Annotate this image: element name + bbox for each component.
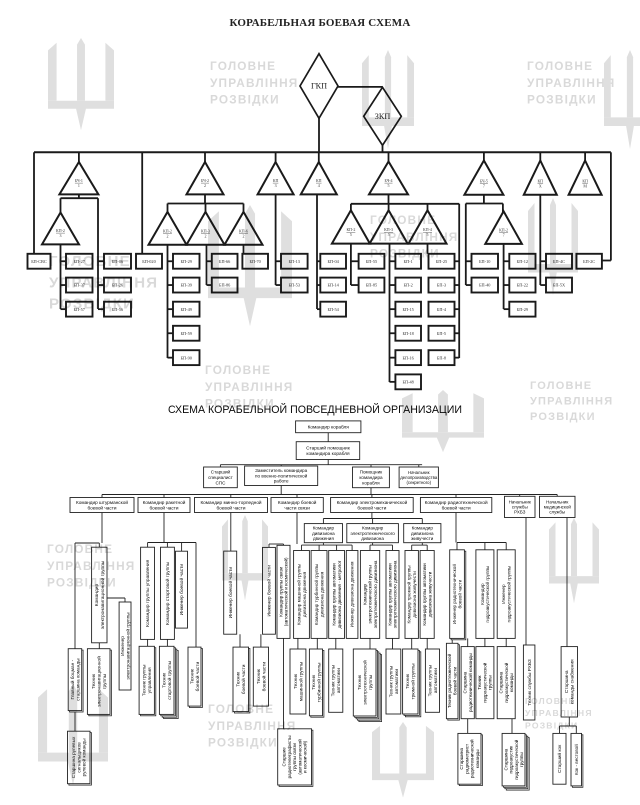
svg-text:Командир турбинной группы: Командир турбинной группы xyxy=(313,563,319,625)
svg-text:2: 2 xyxy=(167,233,169,238)
svg-text:БП-66: БП-66 xyxy=(219,259,231,264)
svg-text:Старшина: Старшина xyxy=(564,670,570,693)
svg-text:управления: управления xyxy=(148,667,153,693)
svg-text:СПС: СПС xyxy=(215,480,226,485)
svg-text:2: 2 xyxy=(205,233,207,238)
svg-text:БП-49: БП-49 xyxy=(181,307,192,312)
svg-text:Командир группы автоматики: Командир группы автоматики xyxy=(387,563,392,626)
svg-text:гидроакустической группы: гидроакустической группы xyxy=(484,565,490,623)
svg-text:БП-18: БП-18 xyxy=(403,331,414,336)
svg-text:Старшина: Старшина xyxy=(499,671,504,693)
svg-text:БП-59: БП-59 xyxy=(181,331,192,336)
svg-text:Командир: Командир xyxy=(313,525,335,530)
svg-text:трюмной группы: трюмной группы xyxy=(410,663,417,700)
svg-text:БП-СВС: БП-СВС xyxy=(31,259,47,264)
svg-text:БП-48: БП-48 xyxy=(403,379,414,384)
svg-text:Инженер боевой части: Инженер боевой части xyxy=(178,564,185,616)
svg-text:работе: работе xyxy=(274,479,289,484)
svg-text:группы: группы xyxy=(488,675,493,690)
svg-text:Помощник: Помощник xyxy=(360,470,383,475)
svg-text:дивизиона движения: дивизиона движения xyxy=(319,571,324,617)
svg-text:БП-15: БП-15 xyxy=(403,307,414,312)
svg-text:радиотелеграфисты: радиотелеграфисты xyxy=(287,735,292,778)
svg-text:Командир: Командир xyxy=(362,525,384,530)
svg-text:(секретного): (секретного) xyxy=(406,480,431,485)
svg-text:команды: команды xyxy=(475,749,480,768)
svg-text:группы: группы xyxy=(103,673,108,689)
svg-text:РОЗВІДКИ: РОЗВІДКИ xyxy=(205,397,275,411)
svg-text:живучести: живучести xyxy=(411,536,434,541)
svg-text:Командир машинной группы: Командир машинной группы xyxy=(295,563,301,625)
svg-text:ГОЛОВНЕ: ГОЛОВНЕ xyxy=(208,702,274,716)
svg-text:БП-12: БП-12 xyxy=(517,259,528,264)
svg-text:ГОЛОВНЕ: ГОЛОВНЕ xyxy=(527,59,593,73)
svg-text:ГОЛОВНЕ: ГОЛОВНЕ xyxy=(210,59,276,73)
svg-text:БП-2С: БП-2С xyxy=(583,259,595,264)
svg-text:Техник группы: Техник группы xyxy=(331,664,337,696)
svg-text:Старший помощник: Старший помощник xyxy=(306,445,351,452)
svg-text:Инженер: Инженер xyxy=(501,584,506,604)
svg-text:Командир штурманской: Командир штурманской xyxy=(76,499,128,505)
svg-text:РОЗВІДКИ: РОЗВІДКИ xyxy=(530,411,596,423)
svg-text:Старшина: Старшина xyxy=(463,671,468,693)
svg-text:(автоматической: (автоматической xyxy=(296,739,302,775)
svg-text:боевой части: боевой части xyxy=(357,504,386,510)
svg-text:ГОЛОВНЕ: ГОЛОВНЕ xyxy=(370,213,436,227)
svg-text:дивизиона движения - метролог: дивизиона движения - метролог xyxy=(337,560,342,628)
svg-text:5: 5 xyxy=(388,183,390,188)
svg-text:РОЗВІДКИ: РОЗВІДКИ xyxy=(210,93,280,107)
svg-text:ГОЛОВНЕ: ГОЛОВНЕ xyxy=(205,363,271,377)
svg-text:боевой части: боевой части xyxy=(87,504,116,510)
svg-text:УПРАВЛІННЯ: УПРАВЛІННЯ xyxy=(527,76,615,90)
svg-text:электротехнической группы: электротехнической группы xyxy=(367,565,373,623)
svg-text:БП-4: БП-4 xyxy=(437,307,447,312)
svg-text:боевой части: боевой части xyxy=(451,666,457,695)
svg-text:Старшина: Старшина xyxy=(459,748,464,770)
svg-text:Техник радиотехнической: Техник радиотехнической xyxy=(446,653,452,708)
svg-text:БП-2: БП-2 xyxy=(404,283,413,288)
svg-text:БП-16: БП-16 xyxy=(403,355,415,360)
svg-text:БП-14: БП-14 xyxy=(327,283,339,288)
svg-text:команды: команды xyxy=(509,673,514,692)
svg-text:дивизиона: дивизиона xyxy=(411,531,434,536)
svg-text:Техник группы: Техник группы xyxy=(427,664,433,696)
svg-text:дивизиона: дивизиона xyxy=(312,531,335,536)
svg-text:гидроакустической группы: гидроакустической группы xyxy=(506,565,512,623)
svg-text:Командир: Командир xyxy=(412,525,434,530)
svg-text:ГОЛОВНЕ: ГОЛОВНЕ xyxy=(47,542,113,556)
svg-text:УПРАВЛІННЯ: УПРАВЛІННЯ xyxy=(47,559,135,573)
svg-text:Командир боевой: Командир боевой xyxy=(278,499,317,505)
svg-text:дивизиона живучести: дивизиона живучести xyxy=(412,571,417,618)
svg-text:БП-020: БП-020 xyxy=(142,259,155,264)
svg-text:УПРАВЛІННЯ: УПРАВЛІННЯ xyxy=(208,719,296,733)
svg-text:БП-54: БП-54 xyxy=(327,307,339,312)
svg-text:Командир трюмной группы: Командир трюмной группы xyxy=(406,565,412,624)
svg-text:дивизиона: дивизиона xyxy=(361,536,384,541)
svg-text:Командир группы автоматики: Командир группы автоматики xyxy=(332,563,337,626)
svg-text:БП-04: БП-04 xyxy=(327,259,339,264)
svg-text:ГОЛОВНЕ: ГОЛОВНЕ xyxy=(530,380,592,392)
svg-text:боевой части: боевой части xyxy=(149,504,178,510)
svg-text:2: 2 xyxy=(243,233,245,238)
svg-text:группы: группы xyxy=(519,752,524,767)
svg-text:Командир ракетной: Командир ракетной xyxy=(143,499,186,505)
svg-text:боевой части: боевой части xyxy=(442,504,471,510)
svg-text:и космической): и космической) xyxy=(302,740,308,773)
svg-text:7: 7 xyxy=(483,183,485,188)
svg-text:3: 3 xyxy=(275,183,277,188)
svg-text:Командир электромеханической: Командир электромеханической xyxy=(337,499,408,505)
svg-text:Командир минно-торпедной: Командир минно-торпедной xyxy=(200,499,261,505)
svg-text:гидроакустической: гидроакустической xyxy=(513,739,519,779)
svg-text:Старший: Старший xyxy=(211,469,231,475)
svg-text:боевой части: боевой части xyxy=(240,664,247,694)
svg-text:БП-8: БП-8 xyxy=(437,355,446,360)
svg-text:Техник группы: Техник группы xyxy=(388,665,394,697)
svg-text:Техник группы: Техник группы xyxy=(142,664,148,696)
svg-text:4: 4 xyxy=(318,183,320,188)
svg-text:Инженер радиотехнической: Инженер радиотехнической xyxy=(451,564,457,625)
svg-text:машинной группы: машинной группы xyxy=(297,661,304,701)
svg-text:Техник: Техник xyxy=(293,673,299,689)
svg-text:ГОЛОВНЕ: ГОЛОВНЕ xyxy=(49,253,131,270)
svg-text:УПРАВЛІННЯ: УПРАВЛІННЯ xyxy=(525,708,593,718)
svg-text:Старшие: Старшие xyxy=(282,747,287,767)
svg-text:РОЗВІДКИ: РОЗВІДКИ xyxy=(527,93,597,107)
svg-text:Техник: Техник xyxy=(256,668,262,684)
svg-text:части связи: части связи xyxy=(284,505,310,510)
svg-text:7: 7 xyxy=(503,232,505,237)
svg-text:движения: движения xyxy=(313,536,334,541)
svg-text:БП-3: БП-3 xyxy=(437,283,446,288)
svg-text:Командир группы связи: Командир группы связи xyxy=(278,566,283,616)
svg-text:группы: группы xyxy=(369,674,374,690)
svg-text:дивизиона движения: дивизиона движения xyxy=(302,571,307,617)
svg-text:электротехнического: электротехнического xyxy=(350,531,395,536)
svg-text:Техник: Техник xyxy=(162,672,168,688)
svg-text:боевой части: боевой части xyxy=(456,579,462,608)
svg-text:БП-90: БП-90 xyxy=(181,355,192,360)
svg-text:боевой части: боевой части xyxy=(216,504,245,510)
svg-text:Техник: Техник xyxy=(236,671,242,687)
svg-text:стартовой группы: стартовой группы xyxy=(166,660,173,699)
svg-text:М: М xyxy=(583,183,587,188)
svg-text:РОЗВІДКИ: РОЗВІДКИ xyxy=(370,247,440,261)
svg-text:БП-5: БП-5 xyxy=(437,331,446,336)
svg-text:группы связи: группы связи xyxy=(292,743,297,771)
svg-text:Старший кок: Старший кок xyxy=(556,744,563,773)
svg-text:корабля: корабля xyxy=(362,480,380,485)
svg-text:Командир стартовой группы: Командир стартовой группы xyxy=(164,561,171,625)
svg-text:Заместитель командира: Заместитель командира xyxy=(255,468,307,473)
svg-text:гидроакустической: гидроакустической xyxy=(503,662,509,702)
svg-text:Командир радиотехнической: Командир радиотехнической xyxy=(425,499,488,505)
svg-text:Техник: Техник xyxy=(357,674,363,690)
svg-text:2: 2 xyxy=(204,183,206,188)
svg-text:гидроакустической: гидроакустической xyxy=(481,662,487,702)
svg-text:РОЗВІДКИ: РОЗВІДКИ xyxy=(208,736,278,750)
svg-text:Командир группы автоматики: Командир группы автоматики xyxy=(422,563,427,626)
svg-text:Командир корабля: Командир корабля xyxy=(308,424,350,430)
svg-text:УПРАВЛІННЯ: УПРАВЛІННЯ xyxy=(370,230,458,244)
svg-text:БП-29: БП-29 xyxy=(181,259,192,264)
svg-text:радиотехнической: радиотехнической xyxy=(469,739,475,778)
svg-text:УПРАВЛІННЯ: УПРАВЛІННЯ xyxy=(530,396,613,408)
svg-text:радиотехнической команды: радиотехнической команды xyxy=(467,653,473,712)
svg-text:медицинской: медицинской xyxy=(544,503,572,509)
svg-text:БП-39: БП-39 xyxy=(181,283,192,288)
svg-text:УПРАВЛІННЯ: УПРАВЛІННЯ xyxy=(205,380,293,394)
svg-text:гидроакустик: гидроакустик xyxy=(509,745,514,774)
svg-text:Командир: Командир xyxy=(362,583,367,605)
svg-text:5: 5 xyxy=(350,232,352,237)
svg-text:Инженер дивизиона движения: Инженер дивизиона движения xyxy=(350,561,355,627)
svg-text:турбинной группы: турбинной группы xyxy=(315,662,322,702)
svg-text:Техник: Техник xyxy=(91,673,97,689)
svg-text:автоматики: автоматики xyxy=(337,668,342,694)
svg-text:электротехнического дивизиона: электротехнического дивизиона xyxy=(373,560,378,628)
svg-text:боевой части: боевой части xyxy=(194,662,201,692)
svg-text:РХБЗ: РХБЗ xyxy=(514,510,526,515)
svg-text:ГКП: ГКП xyxy=(311,82,327,91)
svg-text:дивизиона живучести: дивизиона живучести xyxy=(427,571,432,617)
svg-text:Инженер: Инженер xyxy=(120,636,126,656)
svg-text:РОЗВІДКИ: РОЗВІДКИ xyxy=(49,296,135,313)
svg-text:Х: Х xyxy=(539,183,542,188)
svg-text:Техник: Техник xyxy=(477,675,482,690)
svg-text:БП-22: БП-22 xyxy=(517,283,528,288)
svg-text:УПРАВЛІННЯ: УПРАВЛІННЯ xyxy=(49,274,158,291)
svg-text:УПРАВЛІННЯ: УПРАВЛІННЯ xyxy=(210,76,298,90)
svg-text:1: 1 xyxy=(78,183,80,188)
svg-text:Командир группы управления: Командир группы управления xyxy=(145,559,151,626)
svg-text:командира: командира xyxy=(359,475,383,480)
svg-text:автоматики: автоматики xyxy=(395,669,400,695)
svg-text:Старшина: Старшина xyxy=(503,748,508,770)
svg-text:радиометрист: радиометрист xyxy=(464,744,469,774)
svg-text:БП-85: БП-85 xyxy=(366,283,377,288)
svg-text:электротехнического дивизиона: электротехнического дивизиона xyxy=(393,560,398,628)
svg-text:БП-86: БП-86 xyxy=(219,283,231,288)
svg-text:боевой части: боевой части xyxy=(260,662,267,692)
svg-text:электротехнической: электротехнической xyxy=(361,660,368,705)
svg-text:Техник: Техник xyxy=(405,673,411,689)
svg-text:Кок - вестовой: Кок - вестовой xyxy=(573,744,579,775)
svg-text:3: 3 xyxy=(60,233,62,238)
svg-text:БП-40: БП-40 xyxy=(479,283,490,288)
svg-text:электронавигационной группы: электронавигационной группы xyxy=(124,612,131,680)
svg-text:РОЗВІДКИ: РОЗВІДКИ xyxy=(47,576,117,590)
svg-text:Техник: Техник xyxy=(189,668,195,684)
svg-text:по военно-политической: по военно-политической xyxy=(255,472,308,478)
svg-text:автоматики: автоматики xyxy=(434,668,439,694)
svg-text:БП-29: БП-29 xyxy=(517,307,528,312)
svg-text:Командир: Командир xyxy=(480,583,485,605)
svg-text:РОЗВІДКИ: РОЗВІДКИ xyxy=(525,720,578,730)
svg-text:КОРАБЕЛЬНАЯ БОЕВАЯ СХЕМА: КОРАБЕЛЬНАЯ БОЕВАЯ СХЕМА xyxy=(229,17,410,29)
svg-text:командира корабля: командира корабля xyxy=(306,451,350,457)
svg-text:службы: службы xyxy=(549,510,565,515)
svg-text:ГОЛОВНЕ: ГОЛОВНЕ xyxy=(525,696,576,706)
svg-text:специалист: специалист xyxy=(208,475,234,480)
svg-text:БП-10: БП-10 xyxy=(479,259,490,264)
svg-text:Техник: Техник xyxy=(311,674,317,690)
svg-text:(автоматической и космической): (автоматической и космической) xyxy=(283,557,289,626)
